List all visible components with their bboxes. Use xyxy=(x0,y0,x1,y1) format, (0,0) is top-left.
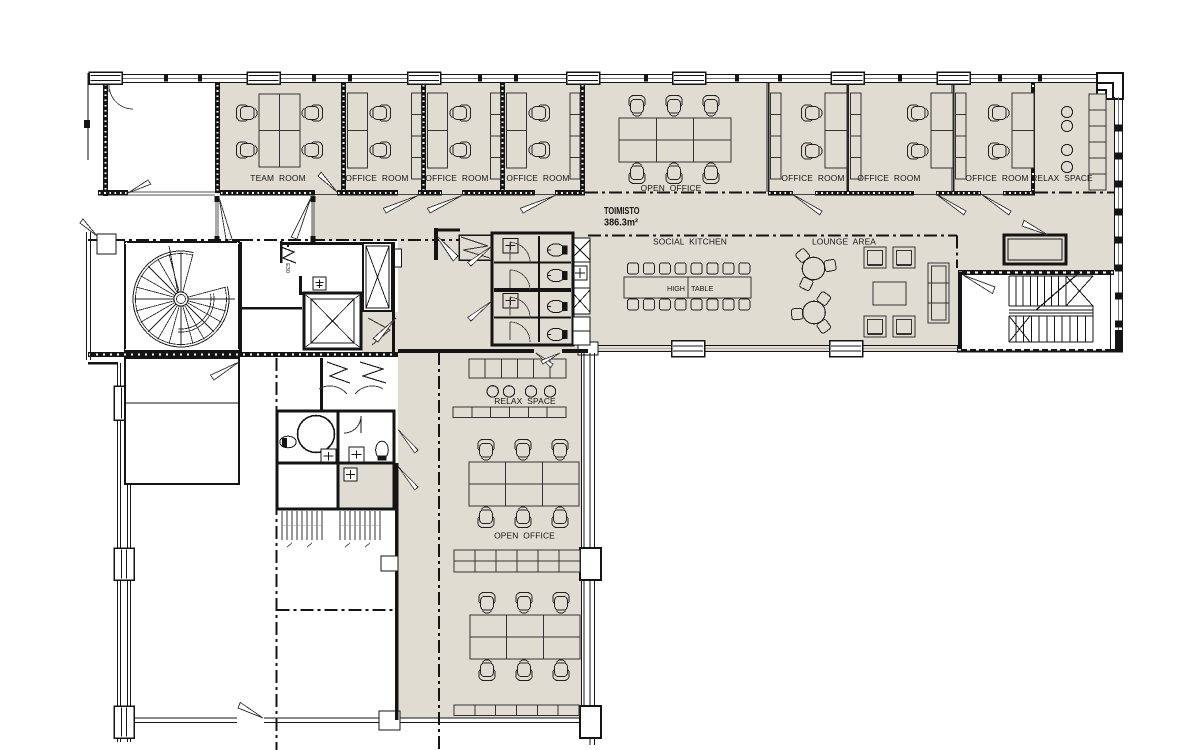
svg-text:OPEN OFFICE: OPEN OFFICE xyxy=(494,531,555,541)
svg-text:OFFICE ROOM: OFFICE ROOM xyxy=(345,173,408,183)
svg-text:TEAM ROOM: TEAM ROOM xyxy=(250,173,305,183)
svg-text:OFFICE ROOM: OFFICE ROOM xyxy=(781,173,844,183)
svg-text:OFFICE ROOM: OFFICE ROOM xyxy=(857,173,920,183)
svg-text:RELAX SPACE: RELAX SPACE xyxy=(1031,173,1093,183)
svg-text:LOUNGE AREA: LOUNGE AREA xyxy=(812,237,876,247)
svg-text:386.3m²: 386.3m² xyxy=(604,218,639,229)
svg-text:E30: E30 xyxy=(284,263,290,273)
svg-text:OFFICE ROOM: OFFICE ROOM xyxy=(425,173,488,183)
svg-text:OFFICE ROOM: OFFICE ROOM xyxy=(965,173,1028,183)
svg-text:OPEN OFFICE: OPEN OFFICE xyxy=(641,183,702,193)
svg-text:RELAX SPACE: RELAX SPACE xyxy=(494,396,556,406)
svg-text:TABLE: TABLE xyxy=(691,284,713,293)
svg-text:HIGH: HIGH xyxy=(667,284,685,293)
svg-text:TOIMISTO: TOIMISTO xyxy=(604,206,640,217)
svg-text:SOCIAL KITCHEN: SOCIAL KITCHEN xyxy=(653,237,727,247)
svg-text:OFFICE ROOM: OFFICE ROOM xyxy=(506,173,569,183)
